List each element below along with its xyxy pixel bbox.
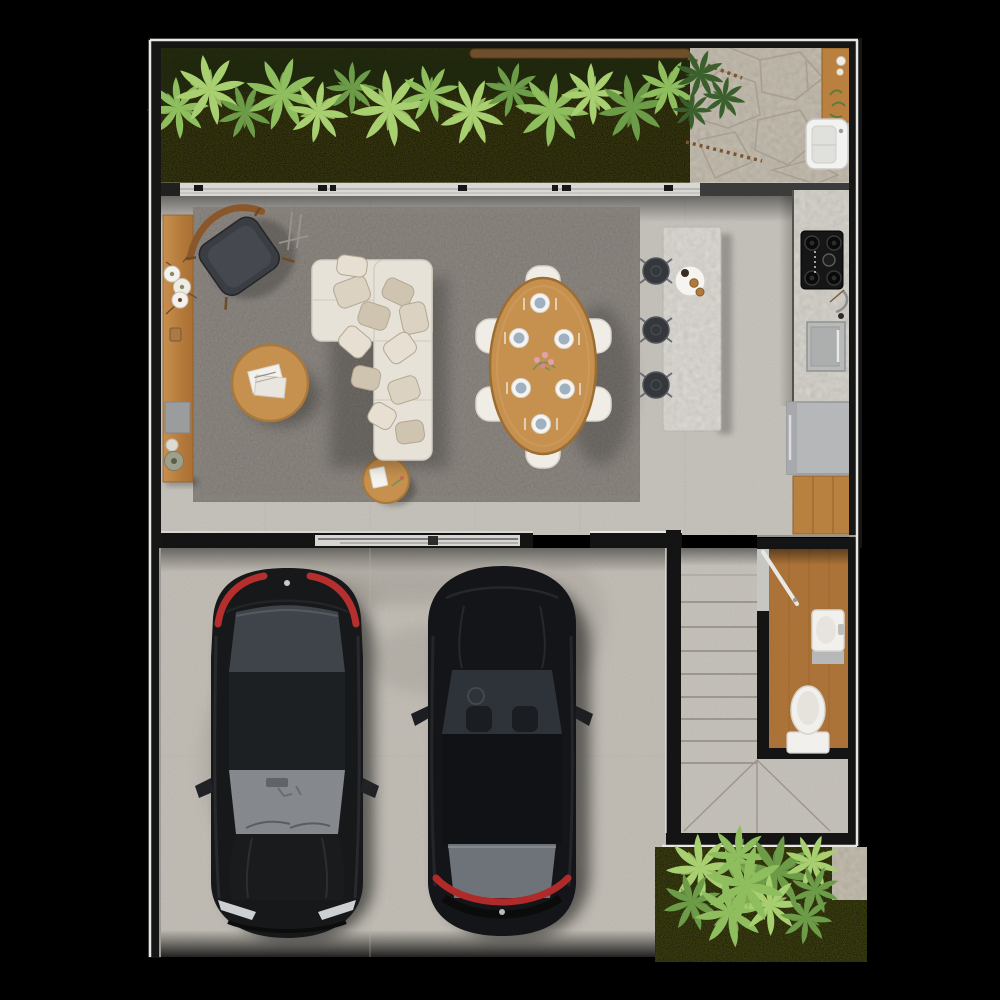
- cooktop-knob: [823, 254, 835, 266]
- laundry-basin: [806, 119, 848, 169]
- driftwood-branch: [470, 49, 690, 58]
- cooktop: [801, 231, 843, 289]
- sliding-glass-door: [315, 535, 520, 546]
- rear-window: [229, 605, 345, 672]
- badge: [499, 909, 505, 915]
- vanity-faucet: [838, 624, 844, 635]
- garage-stair-wall: [666, 530, 681, 846]
- modular-sofa: [312, 254, 448, 468]
- seat: [466, 706, 492, 732]
- rear-window: [448, 844, 556, 898]
- glass-wall-band: [158, 183, 858, 196]
- vanity-cabinet: [812, 651, 844, 664]
- kitchen-island: [663, 227, 721, 431]
- wood-base-cabinet: [793, 476, 852, 534]
- rear-concrete-strip: [832, 847, 867, 900]
- roof: [229, 672, 345, 770]
- decor-tray: [165, 402, 190, 433]
- vanity: [812, 610, 844, 664]
- roof: [442, 734, 562, 844]
- toilet: [787, 686, 829, 753]
- sofa-pillow: [395, 419, 426, 445]
- wall-oven: [807, 322, 845, 371]
- basin-faucet: [839, 129, 843, 133]
- bench-bowl: [837, 57, 846, 66]
- garage: [160, 548, 668, 958]
- seat: [512, 706, 538, 732]
- garden-bench: [822, 48, 852, 122]
- bathroom: [757, 538, 852, 759]
- toilet-tank: [787, 732, 829, 753]
- notebook: [369, 467, 388, 489]
- living-garage-wall: [150, 532, 682, 548]
- front-garden-band: [147, 38, 862, 190]
- car-nose-out: [195, 568, 379, 940]
- serving-tray: [675, 266, 705, 296]
- floor-plan-render: [0, 0, 1000, 1000]
- kitchen-counter-run: [793, 190, 852, 403]
- bench-cup: [837, 69, 844, 76]
- decor-pot: [170, 328, 181, 341]
- bar-stools: [640, 258, 672, 398]
- driveway-fade: [160, 930, 668, 958]
- car-nose-in: [411, 566, 593, 938]
- decor-bowl: [166, 439, 178, 451]
- badge: [284, 580, 290, 586]
- living-zone: [158, 183, 858, 535]
- windshield: [442, 670, 562, 734]
- bathroom-wall-top: [757, 538, 852, 549]
- sofa-pillow: [336, 254, 368, 278]
- wall-right-upper: [849, 38, 862, 548]
- refrigerator: [787, 402, 852, 474]
- dashboard-item: [266, 778, 288, 787]
